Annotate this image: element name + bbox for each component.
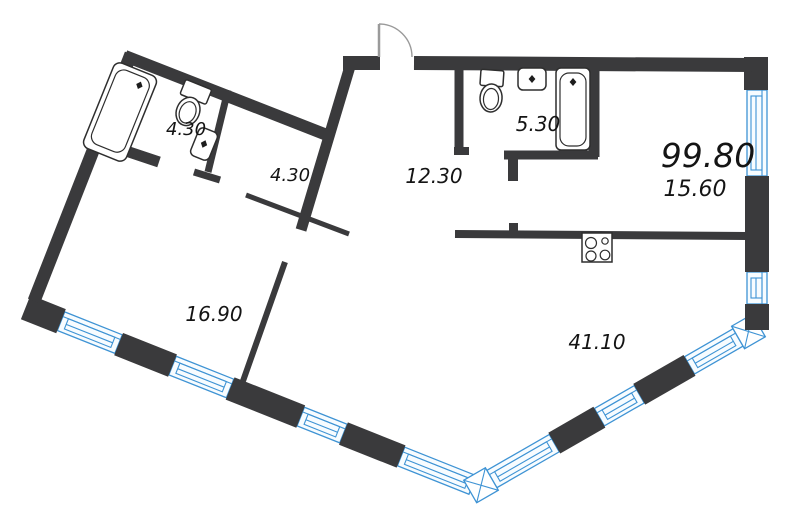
room-area-label: 4.30 bbox=[270, 165, 310, 186]
window-wall-right bbox=[744, 57, 769, 330]
wall-bedroom-living-partition bbox=[243, 262, 285, 381]
floor-plan: 4.30 4.30 5.30 12.30 99.80 15.60 16.90 4… bbox=[0, 0, 800, 520]
room-area-label: 41.10 bbox=[568, 330, 625, 354]
total-area-label: 99.80 bbox=[661, 136, 755, 175]
room-area-label: 4.30 bbox=[166, 119, 206, 140]
wall-pier bbox=[114, 333, 177, 377]
wall-pier bbox=[633, 355, 695, 405]
window-segment bbox=[397, 447, 476, 494]
wall-bathroom2-flange bbox=[454, 147, 469, 155]
wall-partition-cap bbox=[194, 172, 220, 180]
window-segment bbox=[169, 356, 234, 398]
wall-closet-right bbox=[301, 63, 351, 230]
window-wall-bottom-left bbox=[21, 295, 478, 497]
room-area-label: 15.60 bbox=[664, 177, 727, 202]
bathtub-icon bbox=[556, 68, 590, 150]
wall-pier bbox=[226, 377, 305, 427]
window-segment bbox=[594, 386, 644, 426]
window-segment bbox=[685, 329, 744, 374]
window-segment bbox=[487, 434, 559, 487]
stove-icon bbox=[582, 233, 612, 262]
bathtub-icon bbox=[81, 61, 158, 164]
window-segment bbox=[57, 312, 122, 354]
window-segment bbox=[297, 407, 347, 443]
entry-door-arc bbox=[379, 24, 412, 57]
wall-top-right bbox=[414, 63, 752, 65]
room-area-label: 12.30 bbox=[405, 164, 462, 188]
wall-pier bbox=[745, 304, 769, 330]
wall-pier bbox=[339, 422, 405, 467]
toilet-icon bbox=[478, 69, 504, 113]
window-segment bbox=[747, 272, 767, 304]
wall-pier bbox=[548, 407, 605, 454]
wall-pier bbox=[745, 176, 769, 272]
wall-kitchen-bump bbox=[509, 223, 518, 234]
window-frame bbox=[487, 434, 559, 487]
window-frame bbox=[747, 272, 767, 304]
entry-door bbox=[379, 24, 412, 57]
floor-plan-canvas: 4.30 4.30 5.30 12.30 99.80 15.60 16.90 4… bbox=[0, 0, 800, 520]
room-area-label: 16.90 bbox=[185, 302, 242, 326]
room-area-label: 5.30 bbox=[516, 112, 561, 136]
window-frame bbox=[594, 386, 644, 426]
sink-icon bbox=[518, 68, 546, 90]
window-frame bbox=[685, 329, 744, 374]
